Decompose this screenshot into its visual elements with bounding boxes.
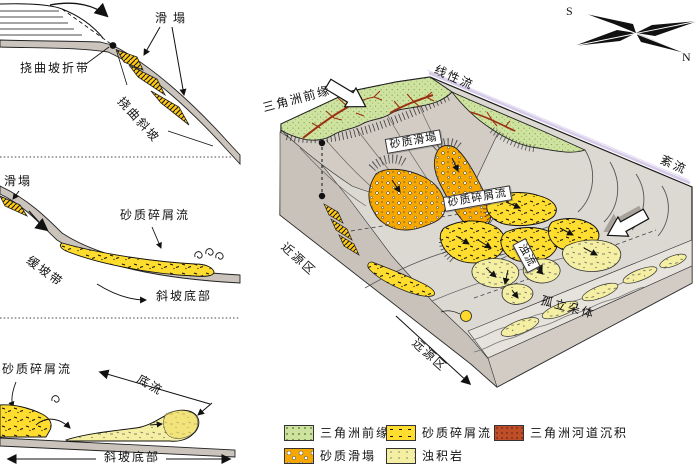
label-sandy-debris-flow-p2: 砂质碎屑流 [120,208,190,222]
panel-cross-section-flexure [0,3,240,164]
compass-south-letter: S [566,4,573,19]
panel-cross-section-slope-bottom [0,372,235,459]
collapse-arrow [50,3,107,16]
compass-icon [574,14,698,53]
turbulence-swirls [195,249,223,260]
slump-arrow-2 [172,27,184,95]
label-sandy-debris-flow-p3: 砂质碎屑流 [2,362,72,376]
legend-label-delta-front: 三角洲前缘 [320,424,390,441]
compass-north-letter: N [682,50,691,65]
slope-bottom-arrow [97,284,146,300]
legend-swatch-delta-front [284,425,314,441]
legend-label-turbidite: 浊积岩 [422,447,464,464]
legend-swatch-sandy-slump [284,448,314,464]
swirl [52,396,59,403]
legend-item-turbidite: 浊积岩 [386,447,464,464]
debris-flow-pointer-arrow [152,227,161,248]
slump-arrow-1 [144,27,160,55]
label-slump-p1: 滑塌 [155,11,191,25]
sandy-debris-flow-body [60,243,214,276]
slope-break-dot-lower [319,193,325,199]
label-slope-bottom-p2: 斜坡底部 [156,289,212,303]
label-slump-p2: 滑塌 [4,174,32,188]
debris-flow-pointer-arrow [12,382,16,407]
legend-label-sandy-debris-flow: 砂质碎屑流 [422,424,492,441]
label-flexure-break: 挠曲坡折带 [20,61,90,75]
slope-break-dot [110,42,117,49]
delta-topset-surface [0,4,103,38]
legend-item-sandy-slump: 砂质滑塌 [284,447,376,464]
legend-swatch-sandy-debris-flow [386,425,416,441]
detached-blob [461,311,472,322]
legend-label-delta-channel: 三角洲河道沉积 [530,424,628,441]
debris-flow-wedge [0,405,51,437]
figure-canvas: 挠曲坡折带 滑塌 挠曲斜坡 滑塌 砂质碎屑流 缓坡带 斜坡底部 砂质碎屑流 底流… [0,0,700,470]
bottom-current-deflection [198,403,212,415]
legend-swatch-delta-channel [494,425,524,441]
legend-item-delta-front: 三角洲前缘 [284,424,390,441]
figure-artwork [0,0,700,470]
legend-item-delta-channel: 三角洲河道沉积 [494,424,628,441]
slope-break-dot-upper [319,140,325,146]
legend-swatch-turbidite [386,448,416,464]
legend-label-sandy-slump: 砂质滑塌 [320,447,376,464]
projected-surface-dashed [62,9,111,44]
block-diagram [280,70,692,387]
label-slope-bottom-p3: 斜坡底部 [104,450,160,464]
legend-item-sandy-debris-flow: 砂质碎屑流 [386,424,492,441]
